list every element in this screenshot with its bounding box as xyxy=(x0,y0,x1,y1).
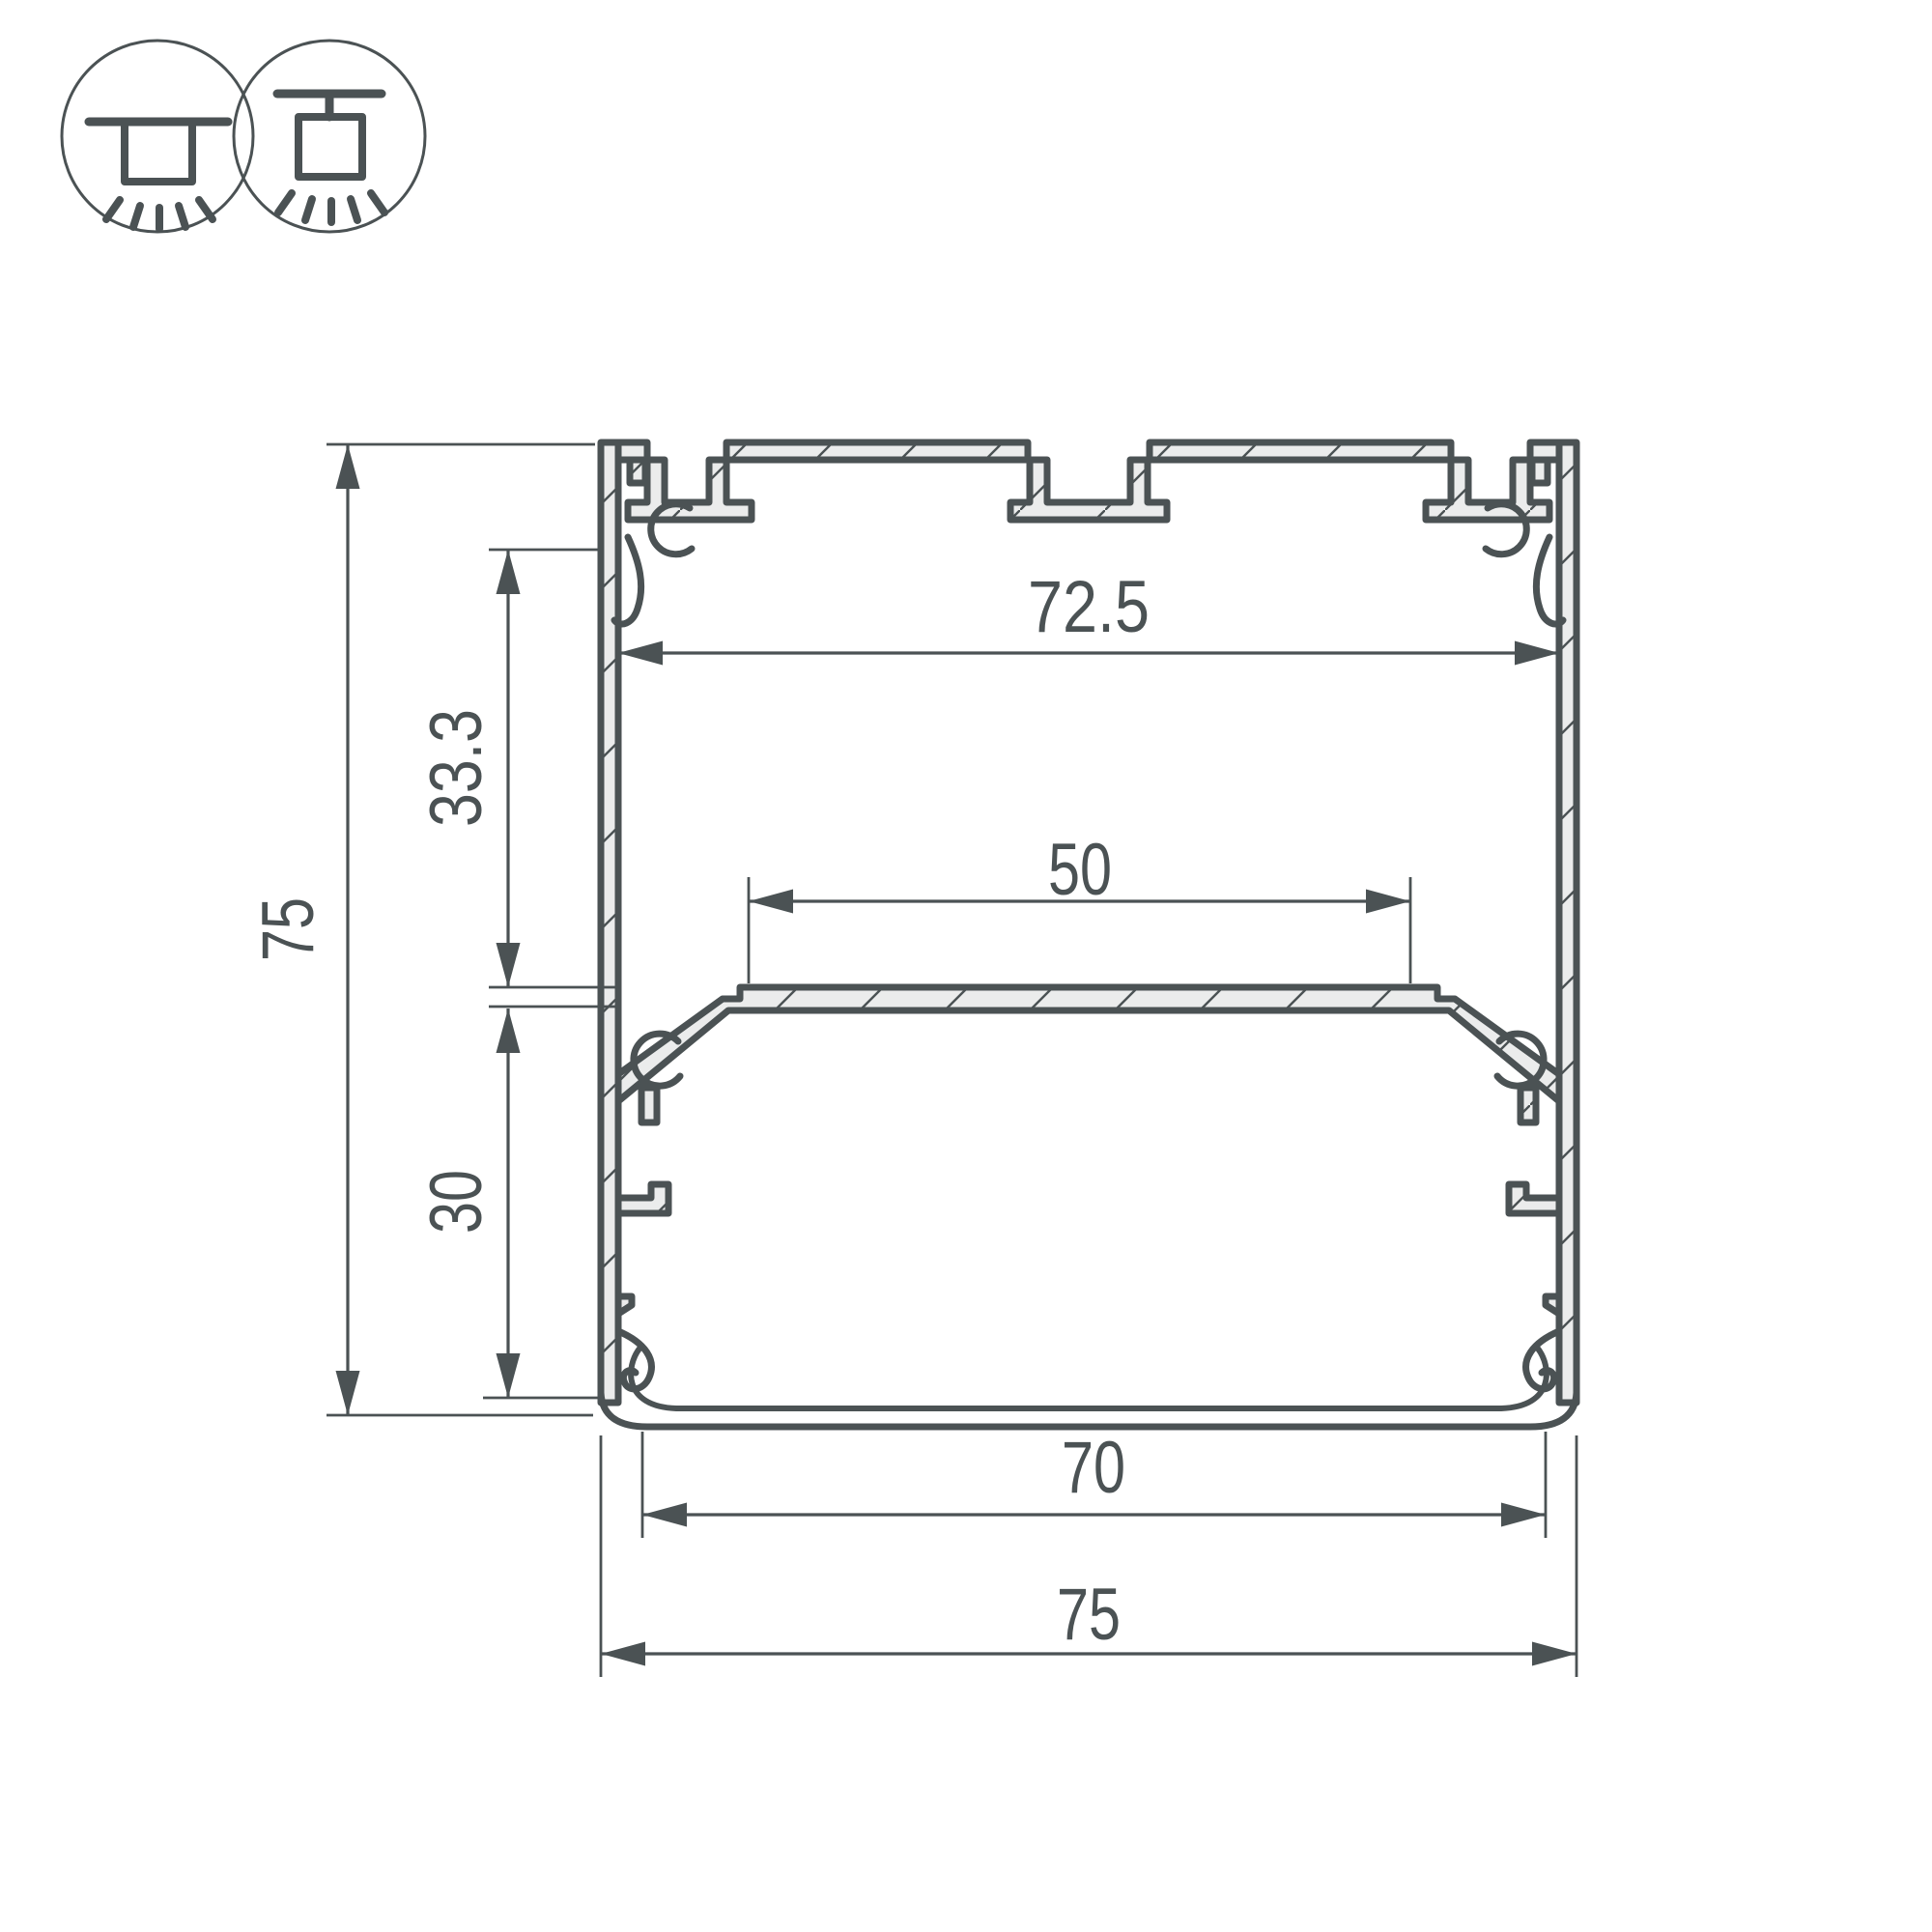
diffuser xyxy=(601,1349,1577,1427)
dimension-inner-width: 72.5 xyxy=(618,566,1559,666)
surface-mount-icon xyxy=(62,41,253,232)
hook-lower-left xyxy=(618,1184,668,1213)
dimension-label-overall-height: 75 xyxy=(247,897,329,961)
wall-nub-left xyxy=(618,1296,632,1314)
top-plate-2 xyxy=(1150,442,1451,460)
dimension-lower-depth: 30 xyxy=(415,1007,616,1398)
dimension-label-lower-depth: 30 xyxy=(415,1170,497,1234)
dimensions: 75 33.3 30 72.5 xyxy=(247,444,1577,1677)
wall-nub-right xyxy=(1546,1296,1559,1314)
mount-type-icons xyxy=(62,41,425,232)
suspension-mount-icon xyxy=(234,41,425,232)
hook-lower-right xyxy=(1509,1184,1559,1213)
dimension-overall-height: 75 xyxy=(247,444,595,1415)
dimension-led-shelf-width: 50 xyxy=(749,829,1410,983)
top-channel-middle xyxy=(1010,460,1167,520)
dimension-label-overall-width: 75 xyxy=(1057,1574,1121,1656)
dimension-label-led-shelf-width: 50 xyxy=(1048,829,1112,911)
technical-drawing: 75 33.3 30 72.5 xyxy=(0,0,1932,1932)
top-plate-1 xyxy=(726,442,1028,460)
drawing-canvas: 75 33.3 30 72.5 xyxy=(0,0,1932,1932)
led-shelf xyxy=(618,987,1559,1101)
dimension-label-diffuser-width: 70 xyxy=(1062,1427,1125,1509)
dimension-upper-depth: 33.3 xyxy=(415,550,616,987)
top-flange-right-lip xyxy=(1532,460,1548,483)
top-flange-left-lip xyxy=(630,460,645,483)
profile-left-wall xyxy=(601,442,618,1403)
dimension-label-upper-depth: 33.3 xyxy=(415,709,497,827)
profile-right-wall xyxy=(1559,442,1577,1403)
dimension-diffuser-width: 70 xyxy=(642,1427,1546,1538)
dimension-label-inner-width: 72.5 xyxy=(1028,566,1150,648)
